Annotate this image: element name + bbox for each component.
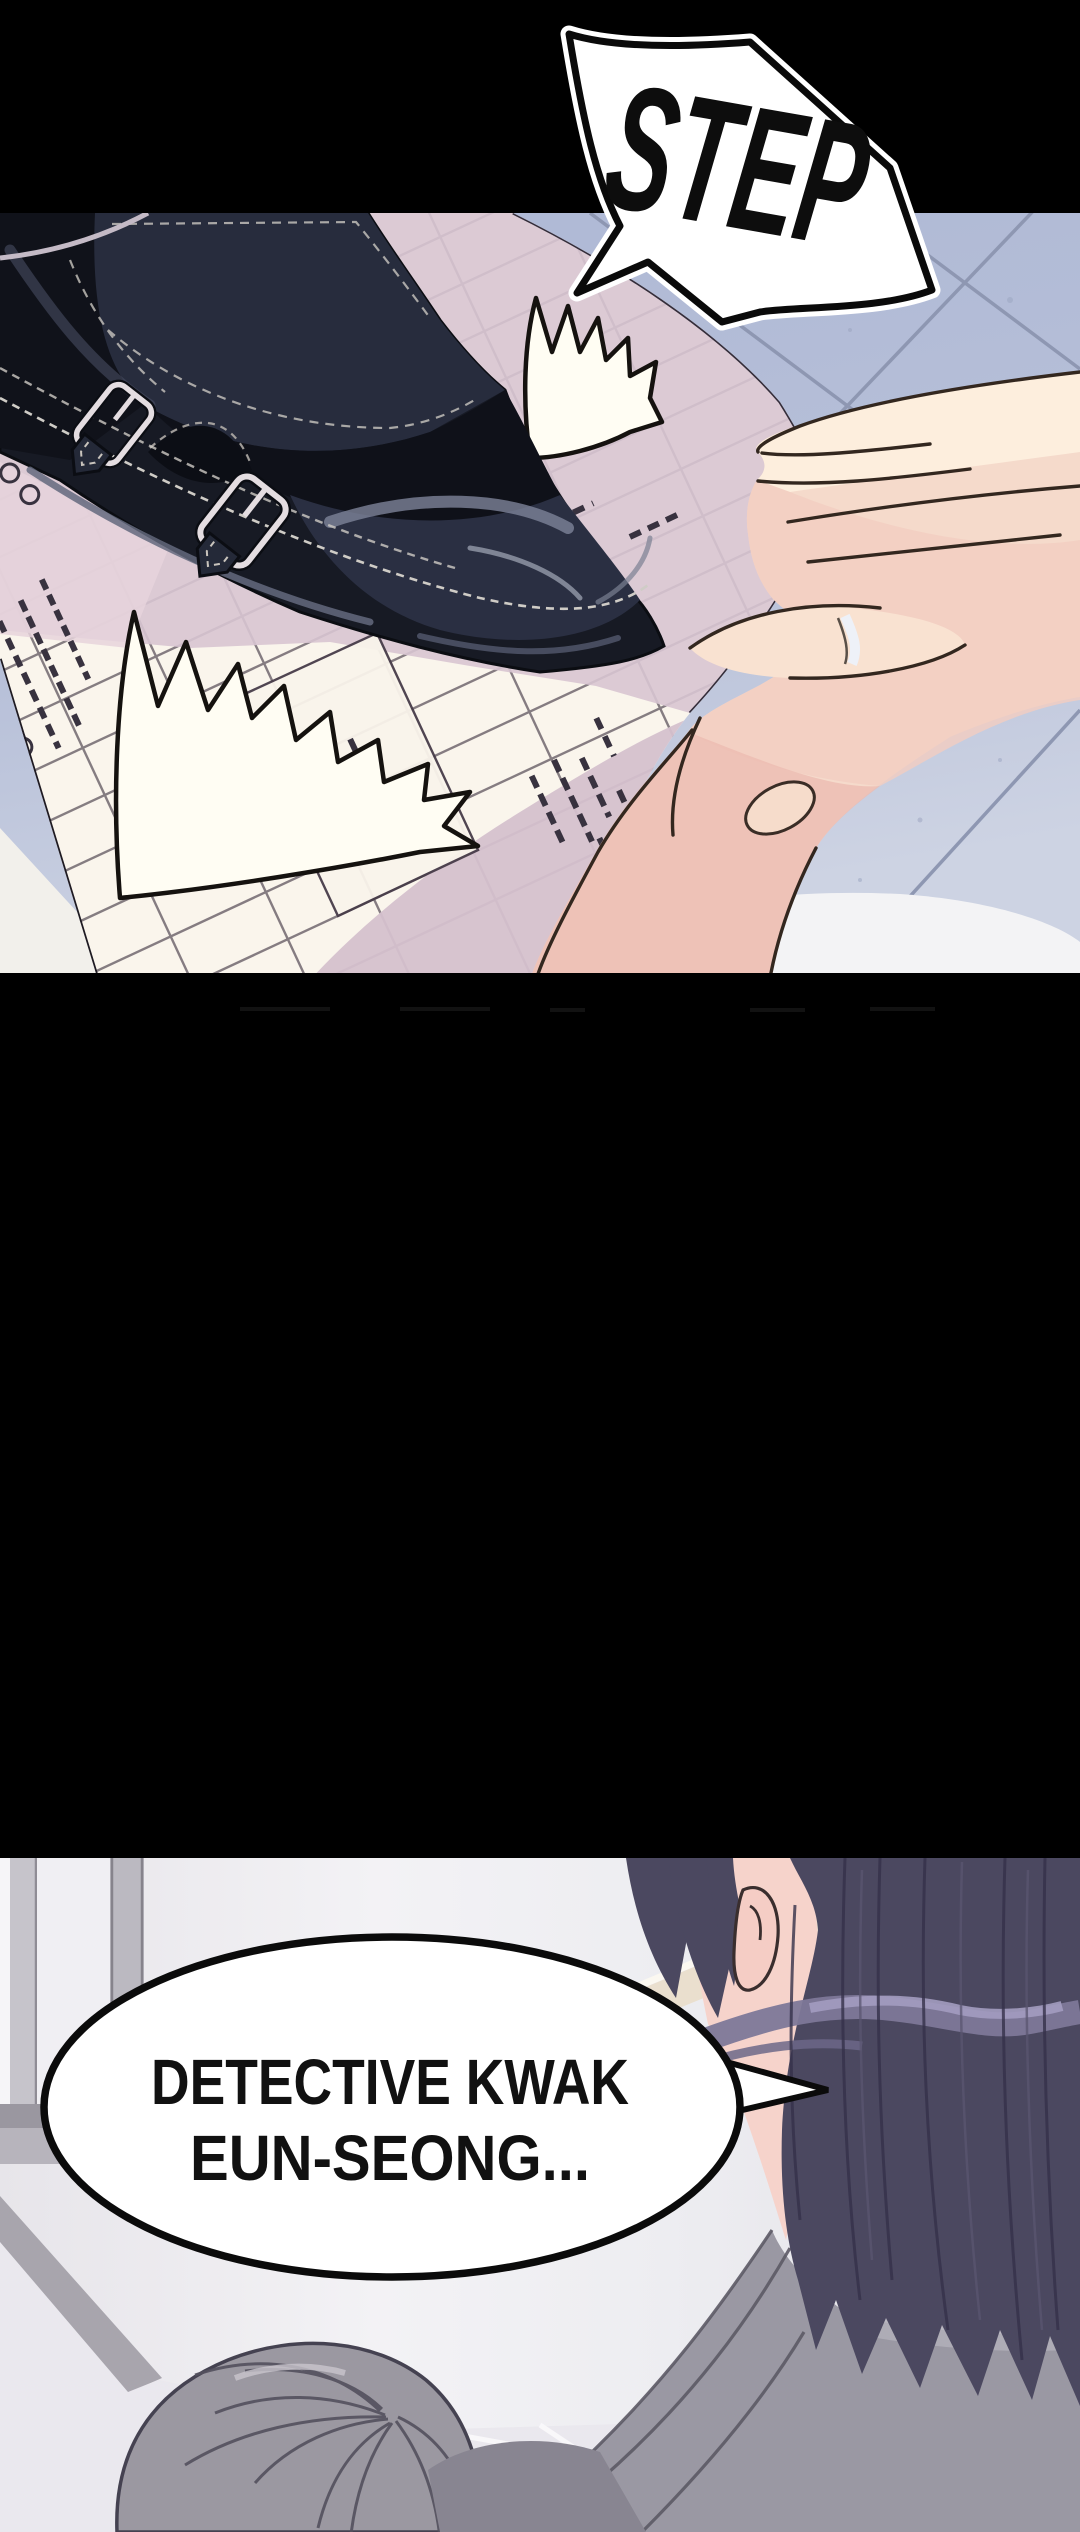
svg-text:EUN-SEONG...: EUN-SEONG... <box>190 2122 590 2194</box>
svg-text:DETECTIVE KWAK: DETECTIVE KWAK <box>151 2046 629 2118</box>
